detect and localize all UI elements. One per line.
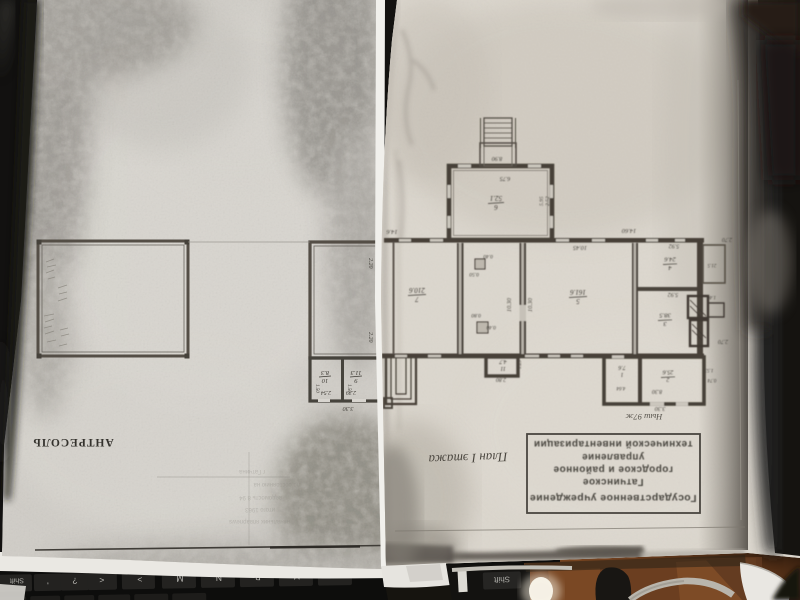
svg-text:Shift: Shift (493, 575, 510, 585)
svg-text:52.1: 52.1 (490, 194, 502, 202)
svg-text:8.30: 8.30 (652, 388, 662, 394)
svg-text:11: 11 (500, 365, 505, 371)
svg-text:ведомость 8 94: ведомость 8 94 (238, 494, 282, 500)
svg-text:8.3: 8.3 (320, 369, 329, 376)
svg-text:5: 5 (576, 297, 580, 305)
svg-text:161.6: 161.6 (570, 288, 586, 296)
svg-text:0.80: 0.80 (471, 312, 481, 318)
svg-text:38.5: 38.5 (659, 312, 672, 319)
svg-text:по состоянию на: по состоянию на (253, 481, 300, 487)
svg-text:2.80: 2.80 (496, 376, 506, 382)
svg-text:14.6: 14.6 (386, 228, 398, 235)
svg-text:4.64: 4.64 (616, 385, 625, 392)
svg-text:1: 1 (620, 371, 623, 377)
svg-text:7.6: 7.6 (618, 364, 625, 370)
svg-text:7: 7 (415, 295, 419, 303)
svg-text:3.30: 3.30 (342, 405, 355, 412)
svg-text:3.30: 3.30 (655, 405, 667, 411)
svg-text:0.74: 0.74 (707, 377, 716, 384)
svg-text:5.92: 5.92 (668, 291, 679, 297)
svg-text:0.50: 0.50 (469, 271, 479, 277)
svg-text:Shift: Shift (10, 576, 24, 583)
svg-text:24.6: 24.6 (664, 256, 676, 263)
svg-text:1.53: 1.53 (704, 367, 713, 373)
svg-text:<: < (99, 575, 104, 585)
svg-text:управление: управление (582, 451, 645, 462)
svg-text:6: 6 (494, 203, 498, 211)
svg-text:>: > (137, 575, 142, 585)
svg-text:2.54: 2.54 (321, 389, 331, 396)
svg-text:0.40: 0.40 (486, 324, 496, 331)
svg-text:4.7: 4.7 (498, 358, 506, 365)
svg-text:10.30: 10.30 (506, 297, 513, 312)
svg-text:?: ? (72, 576, 77, 586)
svg-text:10: 10 (321, 377, 328, 384)
svg-text:1.50: 1.50 (346, 384, 351, 393)
svg-text:2.52: 2.52 (545, 196, 551, 206)
svg-text:начальник япварnews: начальник япварnews (229, 518, 290, 524)
svg-text:2.20: 2.20 (367, 258, 373, 269)
svg-text:1.40: 1.40 (707, 294, 716, 299)
svg-text:11.3: 11.3 (350, 369, 362, 376)
svg-text:План I этажа: План I этажа (428, 450, 509, 468)
svg-text:14.60: 14.60 (621, 227, 636, 234)
svg-text:Ныш 97ж: Ныш 97ж (625, 412, 663, 422)
svg-text:210.6: 210.6 (409, 286, 425, 294)
svg-text:5.92: 5.92 (669, 243, 680, 249)
svg-text:Государственное учреждение: Государственное учреждение (529, 492, 696, 503)
svg-text:2.20: 2.20 (367, 332, 373, 343)
svg-text:2.70: 2.70 (718, 338, 728, 344)
svg-text:25.6: 25.6 (662, 369, 674, 376)
svg-text:21.5: 21.5 (707, 262, 716, 267)
svg-text:АНТРЕСОЛЬ: АНТРЕСОЛЬ (32, 436, 113, 448)
svg-text:0.40: 0.40 (483, 253, 493, 260)
svg-text:10.45: 10.45 (573, 244, 587, 251)
svg-text:1.50: 1.50 (314, 384, 319, 393)
svg-text:городское и районное: городское и районное (553, 464, 673, 475)
svg-text:6.75: 6.75 (500, 175, 511, 181)
svg-text:2.70: 2.70 (722, 236, 732, 242)
svg-text:г Гатчина: г Гатчина (238, 468, 265, 474)
svg-text:технической инвентаризации: технической инвентаризации (533, 438, 692, 449)
svg-text:8.90: 8.90 (492, 155, 503, 161)
svg-text:Гатчинское: Гатчинское (582, 476, 643, 487)
svg-text:10.30: 10.30 (527, 297, 534, 312)
svg-text:1.23: 1.23 (518, 360, 523, 369)
